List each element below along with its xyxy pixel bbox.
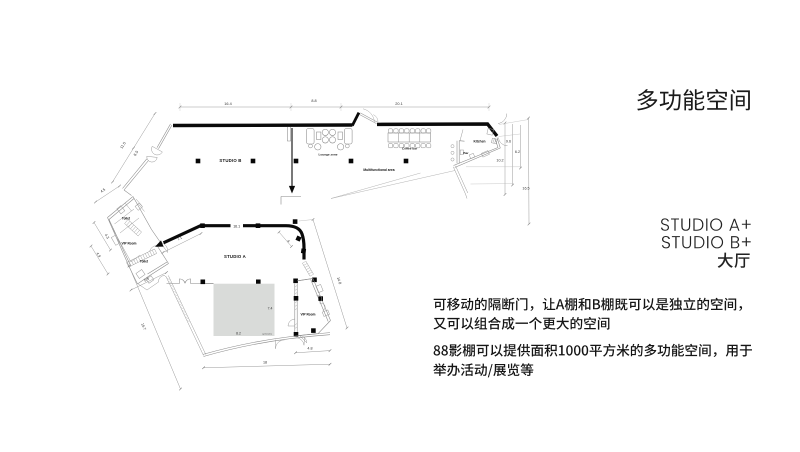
svg-text:Multifunctional area: Multifunctional area bbox=[363, 168, 394, 172]
svg-text:20.1: 20.1 bbox=[395, 102, 402, 106]
svg-text:STUDIO B: STUDIO B bbox=[219, 158, 241, 163]
svg-text:VIP Room: VIP Room bbox=[301, 313, 316, 317]
svg-text:6.2: 6.2 bbox=[515, 150, 520, 154]
svg-text:16.4: 16.4 bbox=[224, 102, 231, 106]
svg-text:VIP Room: VIP Room bbox=[122, 242, 137, 246]
svg-text:4.8: 4.8 bbox=[307, 347, 312, 351]
svg-text:18: 18 bbox=[263, 361, 267, 365]
svg-text:Lounge zone: Lounge zone bbox=[318, 153, 337, 157]
svg-text:7.4: 7.4 bbox=[268, 307, 273, 311]
svg-text:9.6: 9.6 bbox=[506, 140, 511, 144]
svg-text:10.2: 10.2 bbox=[496, 159, 503, 163]
svg-text:Kitchen: Kitchen bbox=[473, 140, 485, 144]
svg-text:Toilet: Toilet bbox=[140, 260, 149, 264]
svg-text:cyclorama: cyclorama bbox=[262, 332, 273, 335]
svg-text:16.1: 16.1 bbox=[233, 225, 240, 229]
svg-text:8.2: 8.2 bbox=[236, 332, 241, 336]
svg-text:8.8: 8.8 bbox=[311, 99, 316, 103]
svg-text:Bar: Bar bbox=[463, 151, 469, 155]
svg-text:STUDIO A: STUDIO A bbox=[224, 254, 246, 259]
svg-text:16.5: 16.5 bbox=[522, 187, 529, 191]
svg-text:Coffee bar: Coffee bar bbox=[402, 147, 418, 151]
svg-text:Toilet: Toilet bbox=[122, 217, 131, 221]
